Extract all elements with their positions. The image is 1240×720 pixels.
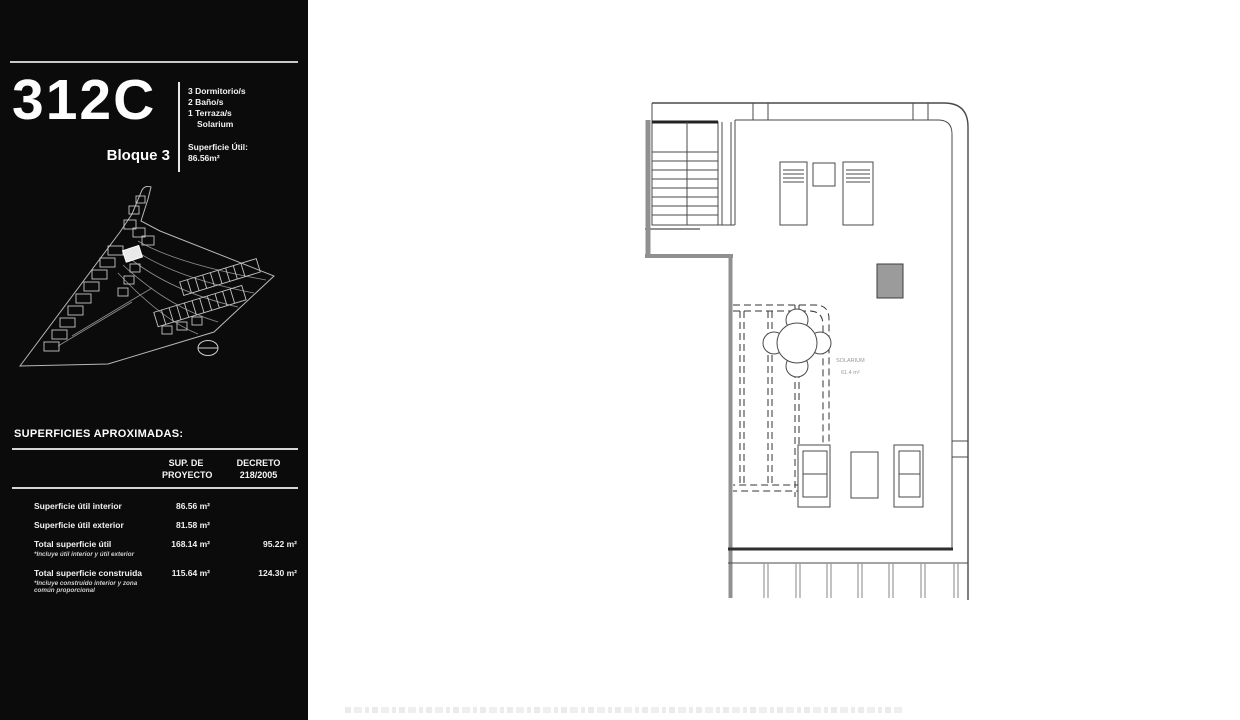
row-decreto-value	[220, 501, 297, 511]
unit-features: 3 Dormitorio/s 2 Baño/s 1 Terraza/s Sola…	[188, 86, 246, 130]
armchair	[798, 445, 830, 507]
row-sup-value: 86.56 m²	[162, 501, 210, 511]
row-decreto-value	[220, 520, 297, 530]
header-sup-proyecto: SUP. DE PROYECTO	[162, 457, 210, 481]
header-decreto: DECRETO 218/2005	[220, 457, 297, 481]
compass-icon	[198, 341, 218, 356]
row-footnote: *Incluye construido interior y zona comú…	[12, 578, 152, 595]
feature-bedrooms: 3 Dormitorio/s	[188, 86, 246, 97]
sun-lounger	[780, 162, 807, 225]
coffee-table	[851, 452, 878, 498]
row-label: Superficie útil exterior	[12, 520, 152, 530]
usable-area-label: Superficie Útil:	[188, 142, 248, 153]
table-row: Superficie útil exterior 81.58 m²	[12, 520, 298, 530]
row-decreto-value: 124.30 m²	[220, 568, 297, 595]
table-row: Superficie útil interior 86.56 m²	[12, 501, 298, 511]
staircase	[652, 120, 735, 225]
gray-walls	[645, 120, 733, 598]
dining-set	[763, 309, 831, 377]
side-table	[813, 163, 835, 186]
room-label: SOLARIUM	[836, 358, 865, 364]
row-label: Total superficie construida	[12, 568, 152, 578]
armchair	[894, 445, 923, 507]
usable-area-value: 86.56m²	[188, 153, 248, 164]
room-area-label: 61.4 m²	[841, 370, 860, 376]
row-footnote: *Incluye útil interior y útil exterior	[12, 549, 152, 559]
usable-area: Superficie Útil: 86.56m²	[188, 142, 248, 164]
site-buildings-left	[44, 196, 154, 351]
areas-table: SUPERFICIES APROXIMADAS: SUP. DE PROYECT…	[12, 428, 298, 604]
row-sup-value: 115.64 m²	[162, 568, 210, 595]
site-buildings-right	[154, 259, 261, 334]
skylight-block	[877, 264, 903, 298]
footer-disclaimer	[345, 707, 903, 713]
row-decreto-value: 95.22 m²	[220, 539, 297, 559]
areas-table-header: SUP. DE PROYECTO DECRETO 218/2005	[12, 450, 298, 487]
top-divider	[10, 61, 298, 63]
areas-table-title: SUPERFICIES APROXIMADAS:	[14, 428, 298, 440]
feature-bathrooms: 2 Baño/s	[188, 97, 246, 108]
row-sup-value: 168.14 m²	[162, 539, 210, 559]
block-name: Bloque 3	[0, 147, 170, 164]
site-plan-illustration	[12, 186, 290, 386]
table-row: Total superficie útil *Incluye útil inte…	[12, 539, 298, 559]
highlighted-building	[123, 246, 143, 263]
header-empty	[12, 457, 152, 481]
header-decreto-line2: 218/2005	[240, 470, 278, 480]
page: 312C Bloque 3 3 Dormitorio/s 2 Baño/s 1 …	[0, 0, 1240, 720]
floor-plan: SOLARIUM 61.4 m²	[630, 90, 1010, 610]
sun-lounger	[843, 162, 873, 225]
railing-posts	[764, 563, 958, 598]
info-panel: 312C Bloque 3 3 Dormitorio/s 2 Baño/s 1 …	[0, 0, 308, 720]
table-row: Total superficie construida *Incluye con…	[12, 568, 298, 595]
header-decreto-line1: DECRETO	[237, 458, 281, 468]
vertical-divider	[178, 82, 180, 172]
header-sup-line2: PROYECTO	[162, 470, 212, 480]
row-label: Total superficie útil	[12, 539, 152, 549]
row-label: Superficie útil interior	[12, 501, 152, 511]
bottom-wall	[728, 549, 968, 563]
feature-solarium: Solarium	[188, 119, 246, 130]
unit-code: 312C	[12, 72, 156, 129]
feature-terrace: 1 Terraza/s	[188, 108, 246, 119]
row-sup-value: 81.58 m²	[162, 520, 210, 530]
header-sup-line1: SUP. DE	[169, 458, 204, 468]
